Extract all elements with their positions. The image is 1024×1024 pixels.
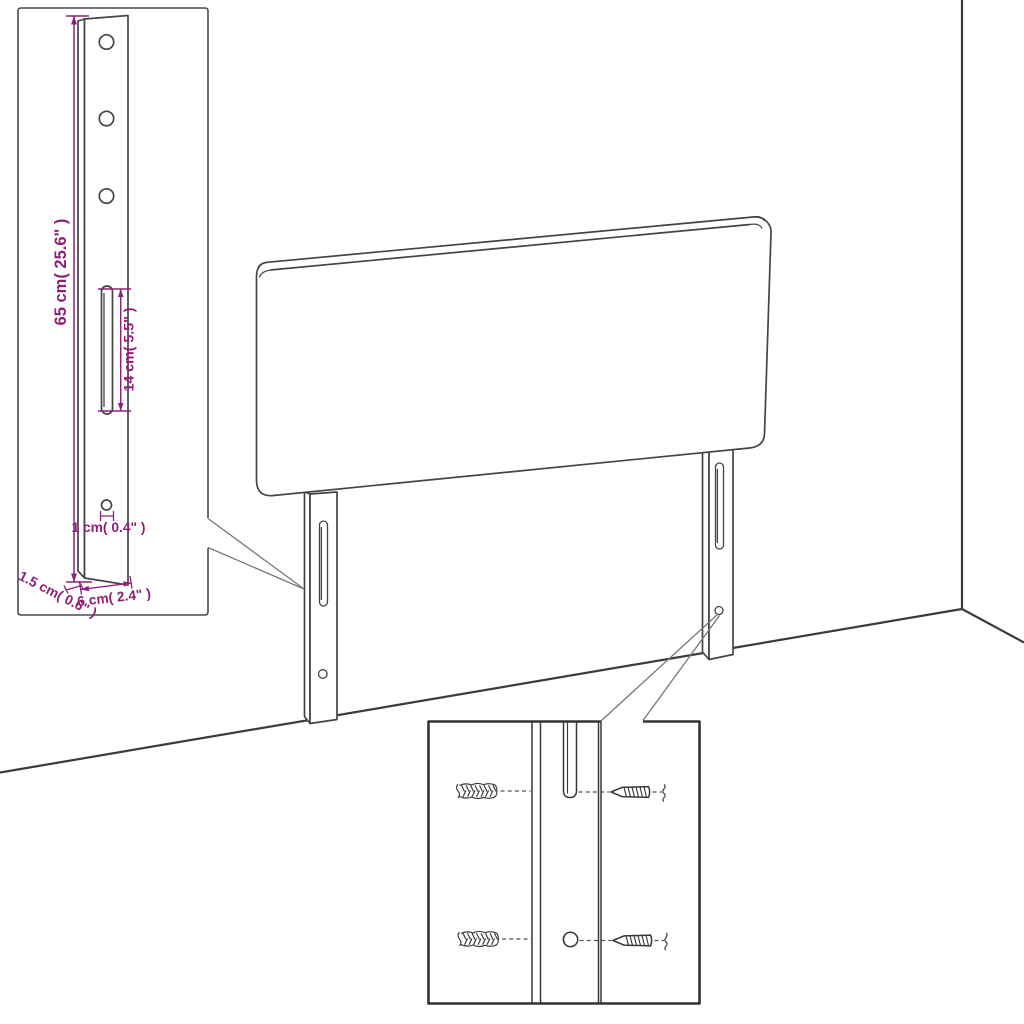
detail-box-fasteners xyxy=(429,722,700,1004)
dimension-label-slot-length: 14 cm( 5.5" ) xyxy=(122,307,138,391)
headboard-dimension-diagram: 65 cm( 25.6" ) 14 cm( 5.5" ) 1 cm( 0.4" … xyxy=(0,0,1024,1024)
leg-front-face xyxy=(709,444,733,660)
inset-box-leg-detail: 65 cm( 25.6" ) 14 cm( 5.5" ) 1 cm( 0.4" … xyxy=(16,8,208,621)
inset-leg-side-face xyxy=(78,19,85,578)
panel-outline xyxy=(257,217,772,496)
callout-wedge-left-leg xyxy=(208,519,304,590)
leg-front-face xyxy=(310,492,337,724)
dimension-label-hole-diameter: 1 cm( 0.4" ) xyxy=(71,520,145,535)
headboard-leg-right xyxy=(703,444,734,660)
dimension-label-leg-height: 65 cm( 25.6" ) xyxy=(52,219,70,326)
headboard-leg-left xyxy=(305,492,338,724)
diagram-canvas: 65 cm( 25.6" ) 14 cm( 5.5" ) 1 cm( 0.4" … xyxy=(0,0,1024,1024)
floor-line-right xyxy=(962,609,1024,643)
headboard-panel xyxy=(257,217,772,496)
